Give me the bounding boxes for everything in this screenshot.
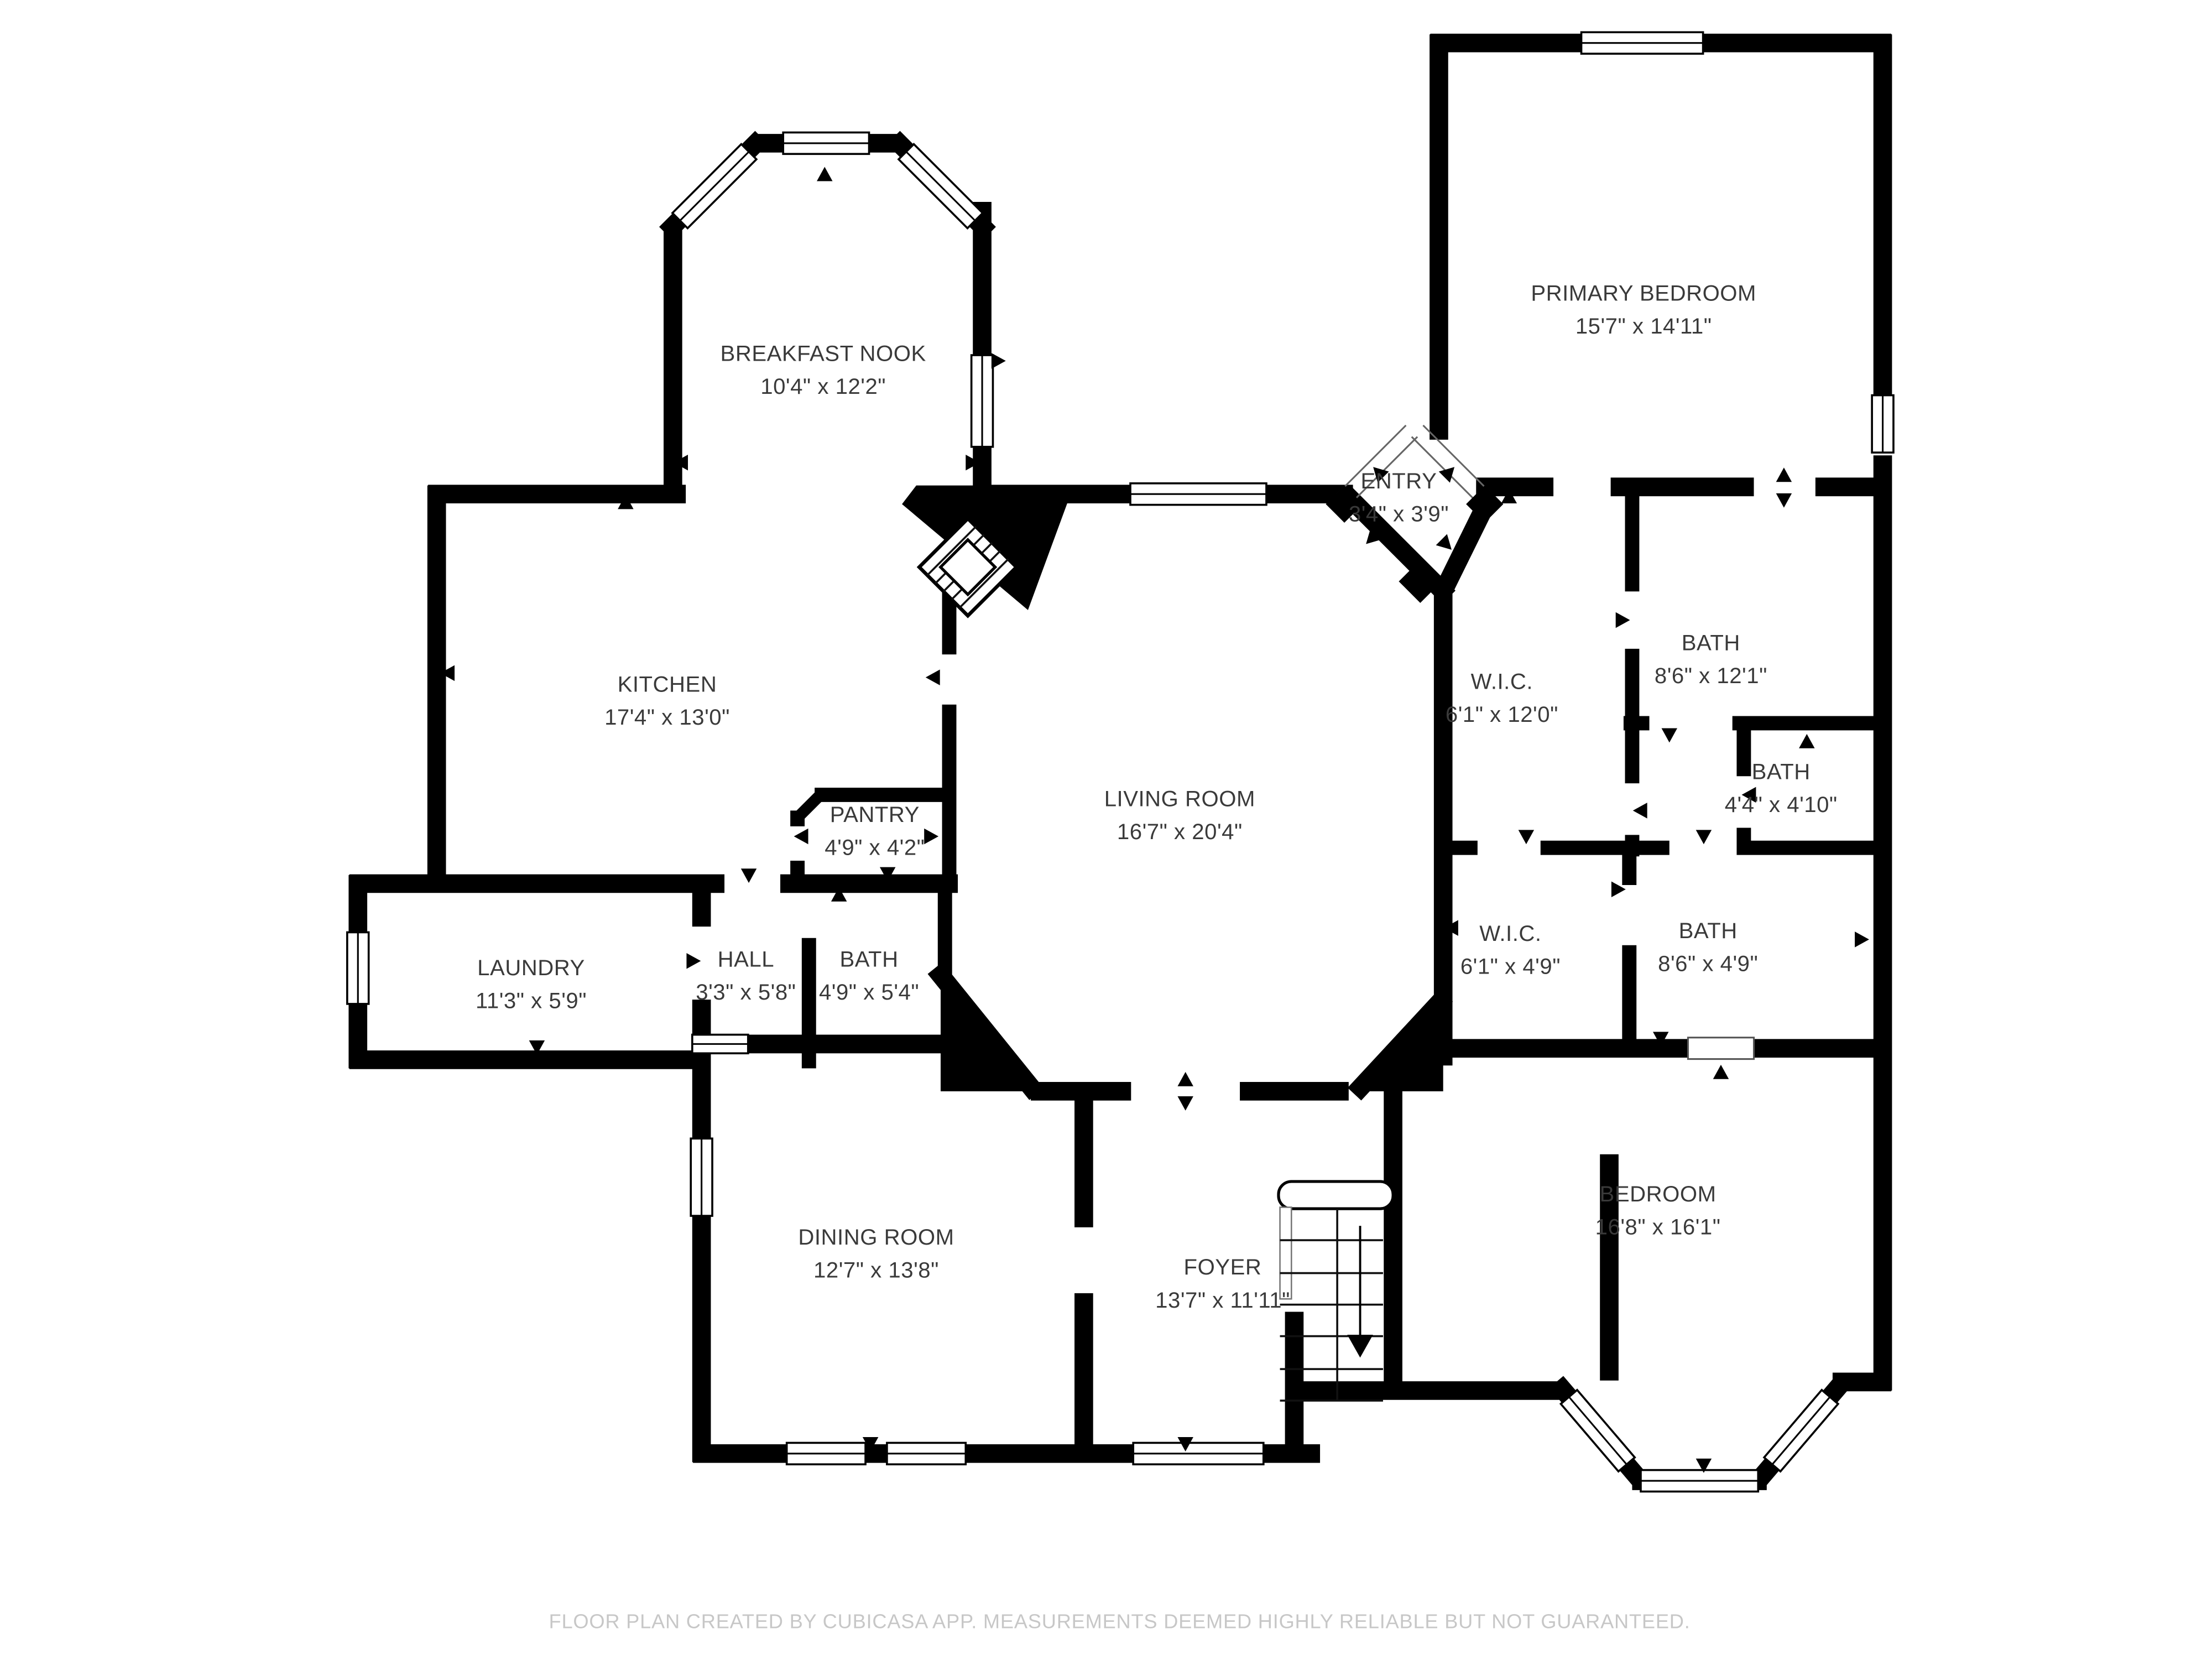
window-icon (691, 1138, 712, 1216)
room-label-entry: ENTRY 3'4" x 3'9" (1349, 465, 1449, 531)
room-dimensions: 11'3" x 5'9" (476, 985, 587, 1018)
room-label-living-room: LIVING ROOM 16'7" x 20'4" (1104, 783, 1255, 849)
window-icon (887, 1443, 966, 1464)
room-name: BATH (1655, 627, 1767, 660)
disclaimer-text: FLOOR PLAN CREATED BY CUBICASA APP. MEAS… (549, 1610, 1691, 1632)
window-icon (1872, 396, 1893, 453)
floor-plan-canvas: BREAKFAST NOOK 10'4" x 12'2" KITCHEN 17'… (0, 0, 2212, 1660)
window-icon (347, 932, 369, 1003)
room-name: LIVING ROOM (1104, 783, 1255, 816)
room-name: BATH (1725, 756, 1838, 789)
room-name: BATH (819, 944, 919, 977)
room-label-bedroom: BEDROOM 16'8" x 16'1" (1595, 1179, 1721, 1245)
window-icon (692, 1035, 748, 1054)
room-dimensions: 8'6" x 4'9" (1658, 948, 1758, 981)
room-name: HALL (696, 944, 796, 977)
room-dimensions: 4'9" x 5'4" (819, 977, 919, 1010)
room-name: ENTRY (1349, 465, 1449, 498)
room-name: BREAKFAST NOOK (721, 338, 926, 371)
room-dimensions: 12'7" x 13'8" (798, 1255, 954, 1288)
stairs-down-arrow (1347, 1226, 1373, 1357)
room-name: W.I.C. (1460, 918, 1561, 951)
room-label-kitchen: KITCHEN 17'4" x 13'0" (604, 669, 730, 735)
window-icon (1130, 483, 1266, 505)
cased-opening-icon (1688, 1038, 1754, 1059)
room-dimensions: 15'7" x 14'11" (1531, 311, 1756, 344)
room-dimensions: 10'4" x 12'2" (721, 371, 926, 404)
room-name: KITCHEN (604, 669, 730, 702)
room-label-bath-small: BATH 4'4" x 4'10" (1725, 756, 1838, 822)
room-dimensions: 8'6" x 12'1" (1655, 660, 1767, 694)
exterior-walls (349, 34, 1891, 1481)
room-dimensions: 17'4" x 13'0" (604, 702, 730, 735)
room-name: BATH (1658, 915, 1758, 948)
room-label-foyer: FOYER 13'7" x 11'11" (1155, 1252, 1290, 1318)
room-name: BEDROOM (1595, 1179, 1721, 1212)
window-icon (1582, 32, 1703, 54)
room-dimensions: 16'7" x 20'4" (1104, 816, 1255, 850)
room-name: LAUNDRY (476, 953, 587, 986)
room-label-pantry: PANTRY 4'9" x 4'2" (825, 799, 925, 865)
room-dimensions: 3'3" x 5'8" (696, 977, 796, 1010)
room-name: PRIMARY BEDROOM (1531, 278, 1756, 311)
window-icon (1133, 1443, 1264, 1464)
room-label-dining-room: DINING ROOM 12'7" x 13'8" (798, 1221, 954, 1287)
window-icon (1561, 1390, 1635, 1471)
room-label-bath-hall: BATH 4'9" x 5'4" (819, 944, 919, 1009)
room-label-bath-primary: BATH 8'6" x 12'1" (1655, 627, 1767, 693)
room-label-primary-bedroom: PRIMARY BEDROOM 15'7" x 14'11" (1531, 278, 1756, 344)
window-symbols (347, 32, 1893, 1491)
room-dimensions: 16'8" x 16'1" (1595, 1211, 1721, 1245)
room-label-wic-lower: W.I.C. 6'1" x 4'9" (1460, 918, 1561, 984)
window-icon (1764, 1390, 1838, 1471)
room-dimensions: 13'7" x 11'11" (1155, 1284, 1290, 1318)
room-dimensions: 3'4" x 3'9" (1349, 498, 1449, 532)
window-icon (787, 1443, 865, 1464)
room-label-laundry: LAUNDRY 11'3" x 5'9" (476, 953, 587, 1018)
room-dimensions: 4'4" x 4'10" (1725, 789, 1838, 823)
room-name: DINING ROOM (798, 1221, 954, 1255)
room-name: W.I.C. (1446, 666, 1558, 699)
window-icon (783, 132, 869, 154)
room-dimensions: 4'9" x 4'2" (825, 832, 925, 865)
window-icon (672, 144, 757, 228)
room-label-bath-lower: BATH 8'6" x 4'9" (1658, 915, 1758, 981)
room-dimensions: 6'1" x 4'9" (1460, 951, 1561, 984)
window-icon (899, 144, 983, 228)
room-name: FOYER (1155, 1252, 1290, 1285)
window-icon (972, 355, 993, 447)
room-label-wic-upper: W.I.C. 6'1" x 12'0" (1446, 666, 1558, 732)
room-name: PANTRY (825, 799, 925, 832)
room-label-breakfast-nook: BREAKFAST NOOK 10'4" x 12'2" (721, 338, 926, 404)
room-label-hall: HALL 3'3" x 5'8" (696, 944, 796, 1009)
window-icon (1641, 1470, 1758, 1492)
room-dimensions: 6'1" x 12'0" (1446, 699, 1558, 732)
